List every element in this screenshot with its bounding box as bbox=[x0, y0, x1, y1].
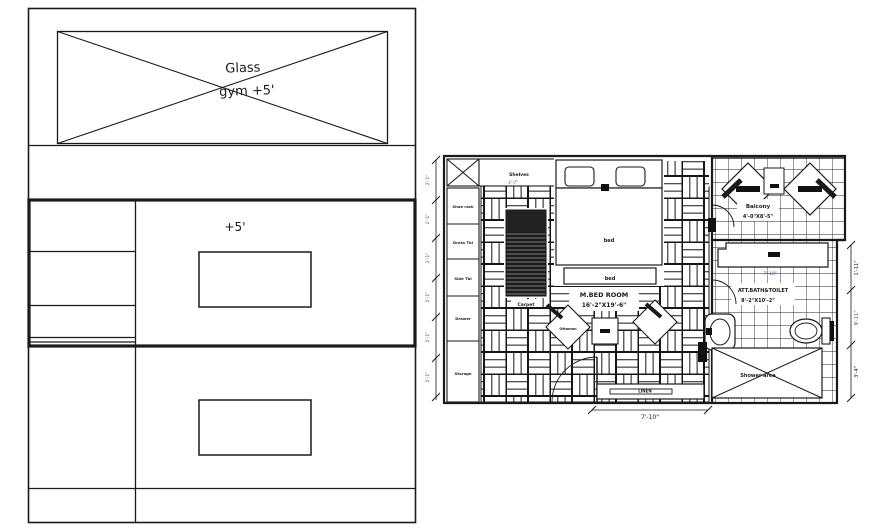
bottom-dim-label: 7'-10" bbox=[641, 414, 659, 421]
bed-foot-label: bed bbox=[605, 276, 616, 282]
right-dimension-chain: 1'-11" 9'-11" 3'-4" bbox=[847, 241, 860, 402]
floor-plan: Shelves 3'-7" Shoe rack Dress Tbl Side T… bbox=[425, 156, 860, 421]
closet-cell-label: Side Tbl bbox=[454, 276, 471, 281]
pillow-right bbox=[616, 167, 645, 186]
carpet-label: Carpet bbox=[518, 302, 536, 308]
left-dim-3: 2'-1" bbox=[425, 253, 431, 264]
linen-unit: LINEN bbox=[597, 384, 704, 399]
vanity-dim-label: 7'-10" bbox=[763, 271, 777, 277]
pillow-left bbox=[565, 167, 594, 186]
closet-cell-label: Drawer bbox=[455, 316, 471, 321]
left-dim-1: 2'-1" bbox=[425, 175, 431, 186]
room-name-label: M.BED ROOM bbox=[580, 291, 629, 299]
glass-label-line2: gym +5' bbox=[219, 83, 275, 100]
shelves-label: Shelves bbox=[509, 172, 529, 178]
ottoman-label: Ottoman bbox=[559, 327, 577, 331]
table-marker bbox=[600, 329, 610, 333]
vanity-marker bbox=[768, 252, 780, 257]
closet-cell-label: Shoe rack bbox=[452, 204, 474, 209]
toilet-wall-marker bbox=[830, 321, 834, 341]
left-dimension-chain: 2'-1" 2'-1" 2'-1" 2'-1" 2'-1" 2'-1" bbox=[425, 156, 440, 401]
right-dim-bottom: 3'-4" bbox=[854, 366, 860, 378]
left-dim-5: 2'-1" bbox=[425, 332, 431, 343]
corner-crossed-unit bbox=[447, 159, 479, 186]
washroom-door-block bbox=[698, 342, 707, 362]
room-title: M.BED ROOM 16'-2"X19'-6" bbox=[569, 287, 639, 311]
bed-mattress bbox=[556, 188, 662, 265]
parquet-strip-right-of-bed bbox=[662, 161, 709, 187]
toilet-fixture bbox=[790, 318, 834, 344]
toilet-tank bbox=[822, 318, 830, 344]
floor-plan-svg: Glass gym +5' +5' Shelves 3'-7" bbox=[0, 0, 870, 529]
left-dim-6: 2'-1" bbox=[425, 372, 431, 383]
bath-size-label: 8'-2"X10'-2" bbox=[741, 298, 775, 304]
bottom-dimension: 7'-10" bbox=[588, 406, 712, 421]
right-dim-top: 1'-11" bbox=[854, 260, 860, 275]
carpet-rug: Carpet bbox=[504, 208, 548, 308]
balcony-planter bbox=[764, 168, 784, 194]
closet-cell-label: Storage bbox=[455, 371, 472, 376]
elevation-lower-section bbox=[29, 400, 416, 489]
balcony-title: Balcony 4'-0"X8'-5" bbox=[737, 199, 779, 221]
shelf-dim-label: 3'-7" bbox=[508, 180, 518, 185]
balcony-size-label: 4'-0"X8'-5" bbox=[743, 214, 774, 220]
level-label: +5' bbox=[225, 220, 246, 234]
balcony-door-block bbox=[708, 218, 716, 232]
balcony-diamond-left-marker bbox=[736, 186, 760, 192]
cad-drawing-canvas: Glass gym +5' +5' Shelves 3'-7" bbox=[0, 0, 870, 529]
shower-tray: Shower area bbox=[712, 348, 822, 398]
wash-basin-fixture bbox=[705, 314, 735, 350]
room-size-label: 16'-2"X19'-6" bbox=[582, 302, 627, 309]
balcony-planter-marker bbox=[770, 184, 779, 188]
elevation-mid-section bbox=[29, 200, 416, 523]
left-dim-4: 2'-1" bbox=[425, 292, 431, 303]
closet-column: Shoe rack Dress Tbl Side Tbl Drawer Stor… bbox=[447, 188, 479, 402]
basin-tap-marker bbox=[706, 328, 712, 335]
washroom-title: ATT.BATH&TOILET 8'-2"X10'-2" bbox=[731, 283, 795, 305]
glass-label-line1: Glass bbox=[225, 60, 261, 76]
bed: bed bed bbox=[554, 158, 664, 286]
elevation-window-mid bbox=[199, 252, 311, 307]
bed-marker bbox=[601, 184, 609, 191]
balcony-diamond-right-marker bbox=[798, 186, 822, 192]
right-dim-mid: 9'-11" bbox=[854, 310, 860, 325]
balcony-name-label: Balcony bbox=[746, 204, 771, 210]
shower-label: Shower area bbox=[740, 373, 775, 379]
bed-label: bed bbox=[604, 238, 615, 244]
left-dim-2: 2'-1" bbox=[425, 214, 431, 225]
elevation-labels: Glass gym +5' +5' bbox=[219, 60, 275, 234]
bath-name-label: ATT.BATH&TOILET bbox=[738, 288, 789, 294]
linen-label: LINEN bbox=[638, 389, 651, 394]
elevation-window-low bbox=[199, 400, 311, 455]
closet-cell-label: Dress Tbl bbox=[453, 240, 473, 245]
